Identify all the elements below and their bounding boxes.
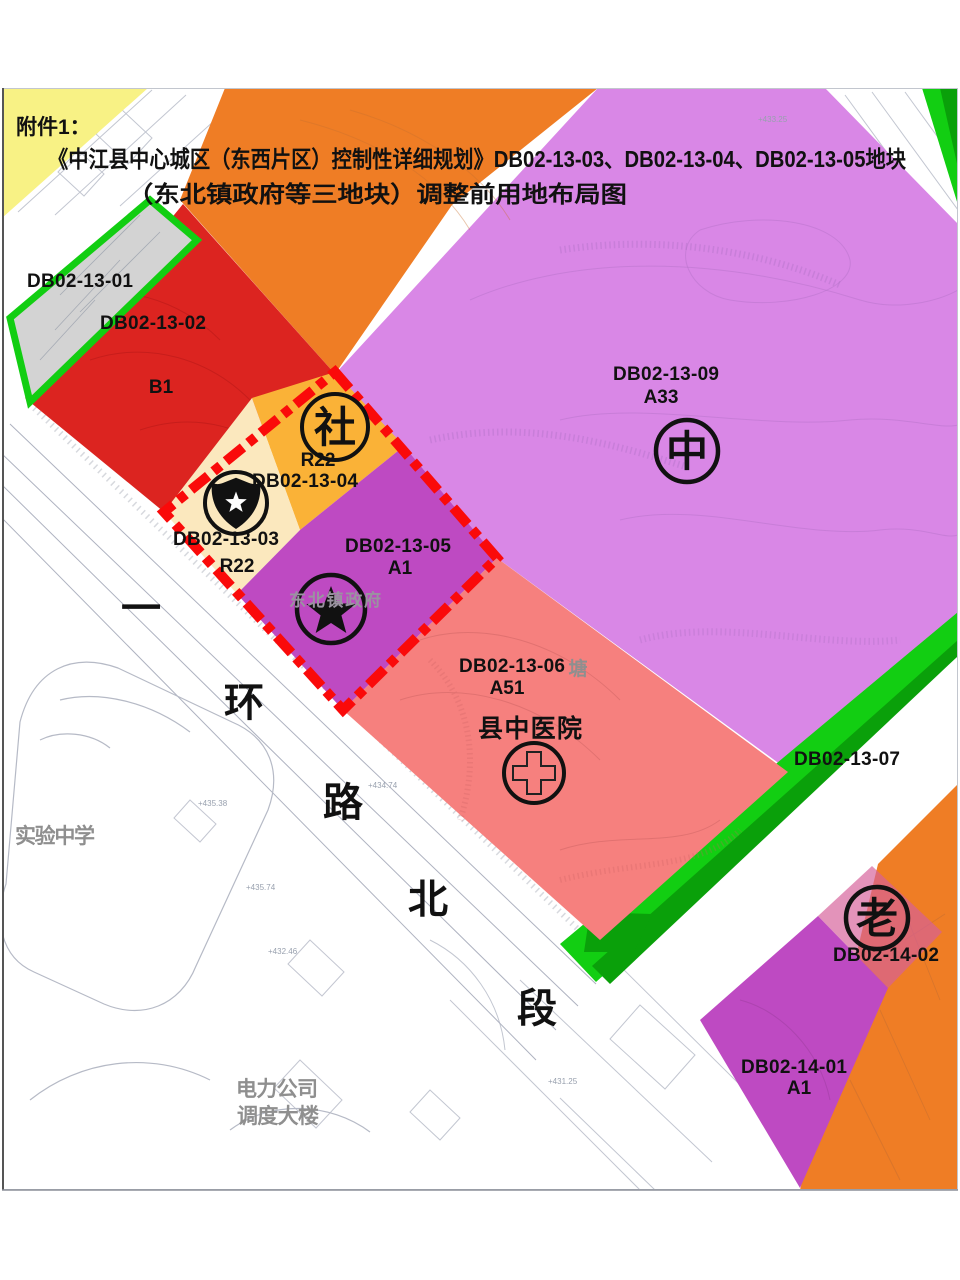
parcel-code-db02-13-04: DB02-13-04 <box>252 471 358 492</box>
road-char-4: 北 <box>408 878 448 922</box>
pond-label: 塘 <box>568 657 587 680</box>
spot-elevation: +435.38 <box>198 799 228 808</box>
parcel-use-db02-13-04: R22 <box>301 450 336 471</box>
spot-elevation: +431.25 <box>548 1077 578 1086</box>
parcel-use-db02-13-03: R22 <box>220 556 255 577</box>
parcel-code-db02-13-07: DB02-13-07 <box>794 749 900 770</box>
elderly-symbol-char: 老 <box>856 895 898 942</box>
spot-elevation: +435.74 <box>246 883 276 892</box>
spot-elevation: +433.25 <box>758 115 788 124</box>
map-title-line2: （东北镇政府等三地块）调整前用地布局图 <box>127 181 627 207</box>
community-symbol-char: 社 <box>314 404 356 451</box>
government-name-label: 东北镇政府 <box>289 590 381 610</box>
land-use-map: 社 中 老 东北镇政府 塘 实验中学 电力公司 <box>0 0 960 1280</box>
parcel-code-db02-14-01: DB02-14-01 <box>741 1057 847 1078</box>
parcel-code-db02-14-02: DB02-14-02 <box>833 945 939 966</box>
parcel-code-db02-13-02: DB02-13-02 <box>100 313 206 334</box>
parcel-use-db02-13-05: A1 <box>388 558 413 579</box>
parcel-use-db02-14-01: A1 <box>787 1078 812 1099</box>
parcel-code-db02-13-05: DB02-13-05 <box>345 536 451 557</box>
attachment-label: 附件1： <box>16 116 91 139</box>
parcel-code-db02-13-03: DB02-13-03 <box>173 529 279 550</box>
power-company-label-line1: 电力公司 <box>236 1078 318 1101</box>
hospital-name-label: 县中医院 <box>478 714 582 743</box>
spot-elevation: +432.46 <box>268 947 298 956</box>
parcel-use-db02-13-02: B1 <box>149 377 174 398</box>
planning-map-page: 社 中 老 东北镇政府 塘 实验中学 电力公司 <box>0 0 960 1280</box>
parcel-use-db02-13-06: A51 <box>490 678 525 699</box>
parcel-code-db02-13-01: DB02-13-01 <box>27 271 133 292</box>
middle-school-symbol-char: 中 <box>666 428 708 475</box>
parcel-code-db02-13-06: DB02-13-06 <box>459 656 565 677</box>
road-char-3: 路 <box>323 781 364 825</box>
power-company-label-line2: 调度大楼 <box>237 1104 319 1128</box>
school-label: 实验中学 <box>15 824 95 848</box>
road-char-2: 环 <box>224 681 264 725</box>
spot-elevation: +434.74 <box>368 781 398 790</box>
road-char-1: 一 <box>121 587 161 631</box>
map-title-line1: 《中江县中心城区（东西片区）控制性详细规划》DB02-13-03、DB02-13… <box>48 146 906 172</box>
road-char-5: 段 <box>517 987 557 1031</box>
parcel-code-db02-13-09: DB02-13-09 <box>613 364 719 385</box>
parcel-use-db02-13-09: A33 <box>644 387 679 408</box>
